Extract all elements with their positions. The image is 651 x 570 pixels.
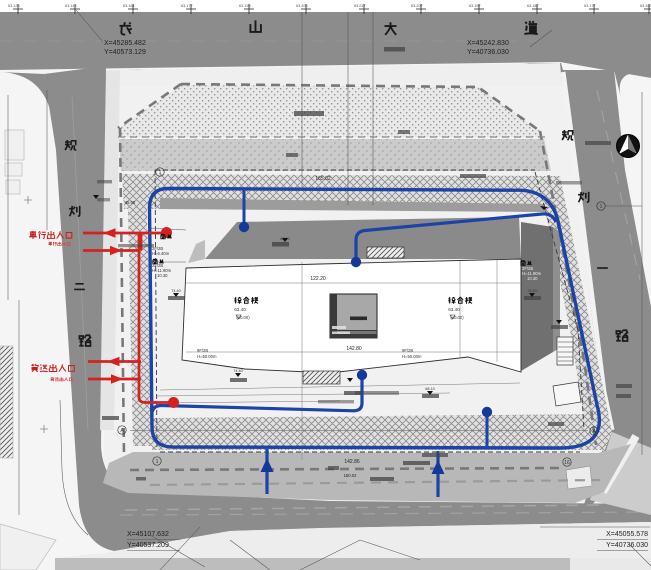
svg-text:X=45285.482: X=45285.482 (104, 40, 146, 47)
svg-text:Y=40537.209: Y=40537.209 (127, 542, 169, 549)
svg-text:X=45107.632: X=45107.632 (127, 531, 169, 538)
svg-text:1: 1 (600, 204, 603, 210)
svg-text:H=50.00m: H=50.00m (402, 354, 422, 359)
svg-text:63.187: 63.187 (527, 4, 539, 8)
svg-text:63.177: 63.177 (584, 4, 596, 8)
svg-text:H=6.40m: H=6.40m (152, 251, 170, 256)
svg-text:63.209: 63.209 (296, 4, 308, 8)
svg-text:68.10: 68.10 (425, 387, 435, 391)
svg-text:9F/2B: 9F/2B (197, 348, 208, 353)
svg-text:74.40: 74.40 (171, 289, 181, 293)
svg-text:63.145: 63.145 (65, 4, 77, 8)
svg-text:63.207: 63.207 (411, 4, 423, 8)
svg-text:63.217: 63.217 (354, 4, 366, 8)
svg-text:74.60: 74.60 (527, 289, 537, 293)
svg-text:142.80: 142.80 (346, 346, 362, 352)
svg-text:X=45055.578: X=45055.578 (606, 531, 648, 538)
svg-text:63.193: 63.193 (239, 4, 251, 8)
svg-text:Y=40736.030: Y=40736.030 (606, 542, 648, 549)
svg-text:16: 16 (564, 460, 570, 466)
svg-text:165.02: 165.02 (315, 176, 331, 182)
svg-text:9F/2B: 9F/2B (402, 348, 413, 353)
svg-text:63.40: 63.40 (234, 307, 246, 312)
svg-text:X=45242.830: X=45242.830 (467, 40, 509, 47)
svg-text:1: 1 (159, 170, 162, 176)
svg-text:142.86: 142.86 (344, 459, 360, 465)
svg-text:H=50.00m: H=50.00m (197, 354, 217, 359)
svg-text:Y=40736.030: Y=40736.030 (467, 49, 509, 56)
svg-text:45.08: 45.08 (125, 200, 136, 205)
svg-text:1: 1 (156, 459, 159, 465)
svg-text:150.02: 150.02 (344, 473, 357, 478)
svg-text:63.177: 63.177 (181, 4, 193, 8)
svg-text:Y=40573.129: Y=40573.129 (104, 49, 146, 56)
svg-text:10.30: 10.30 (157, 273, 168, 278)
svg-text:122.20: 122.20 (310, 276, 326, 282)
svg-text:10.30: 10.30 (527, 276, 538, 281)
svg-text:63.40: 63.40 (448, 307, 460, 312)
svg-text:63.161: 63.161 (123, 4, 135, 8)
svg-text:63.197: 63.197 (469, 4, 481, 8)
svg-text:63.129: 63.129 (8, 4, 20, 8)
svg-text:63.166: 63.166 (640, 4, 651, 8)
svg-text:74.40: 74.40 (233, 369, 243, 373)
